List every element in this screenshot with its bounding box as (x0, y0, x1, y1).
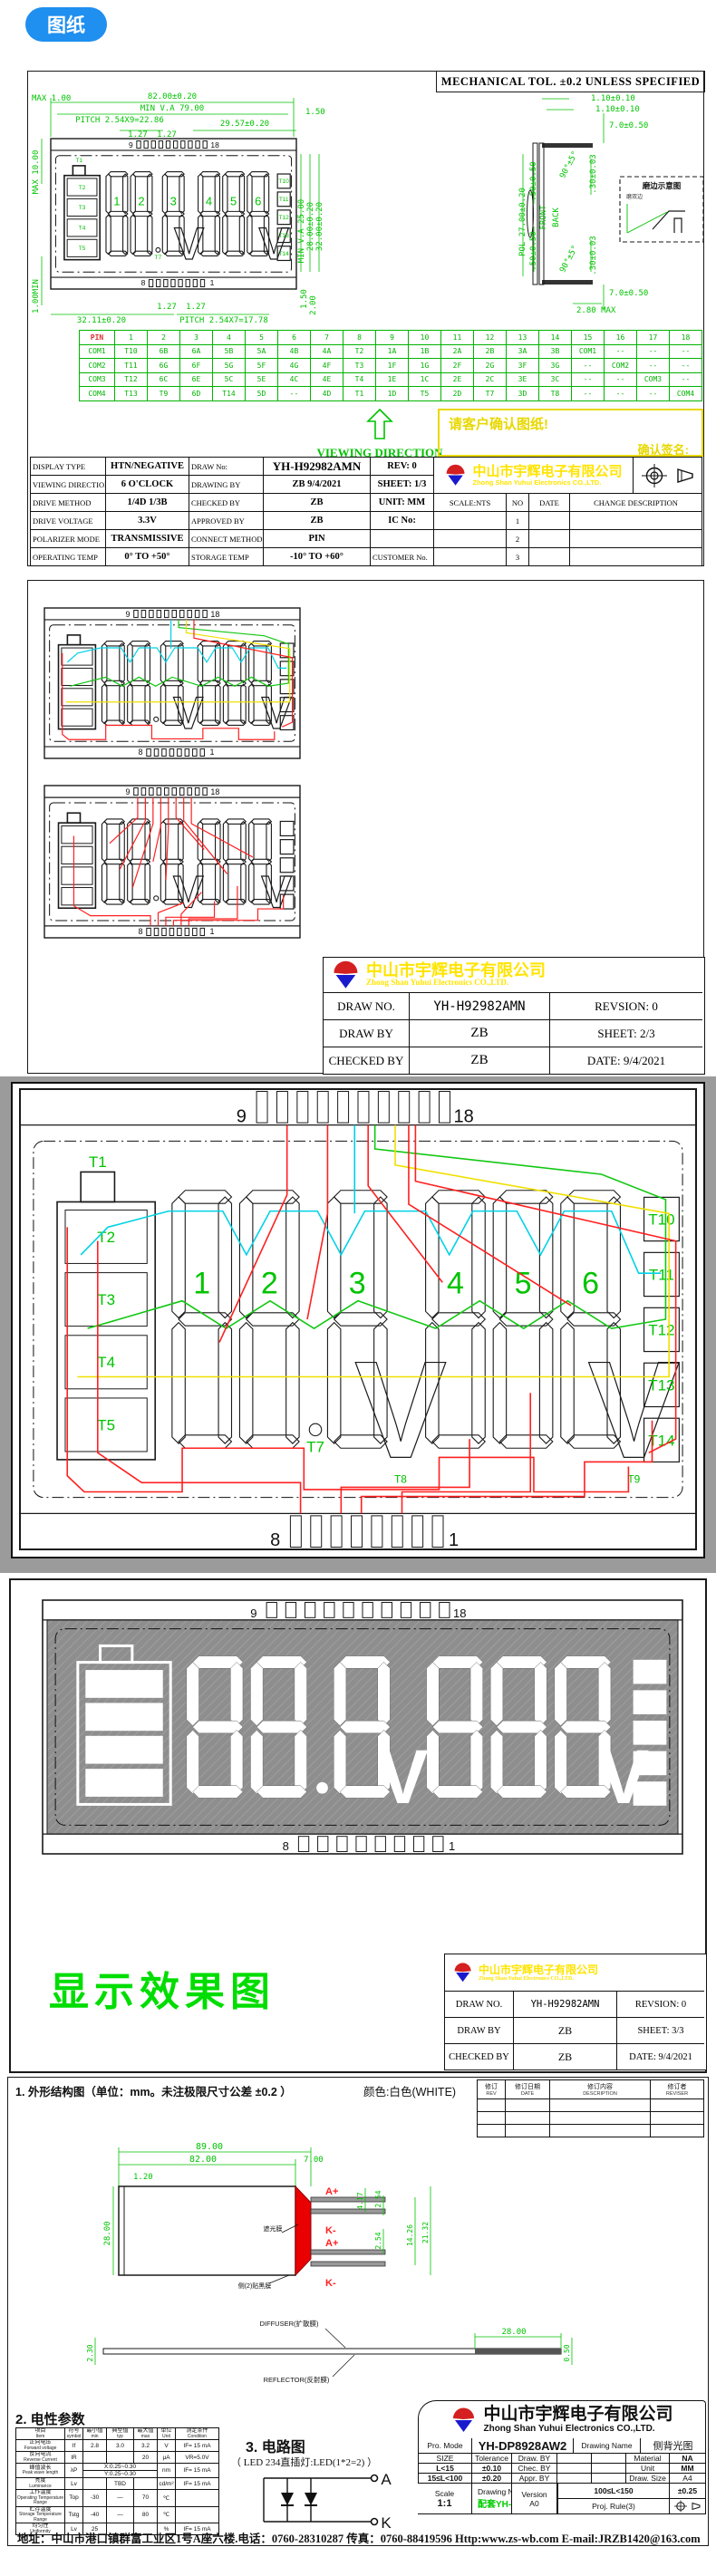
segment (148, 174, 152, 213)
company-name-cn: 中山市宇辉电子有限公司 (483, 2406, 672, 2424)
unit-value: MM (670, 2464, 706, 2474)
segment (470, 1730, 483, 1793)
backlight-page: 1. 外形结构图（单位：mm。未注极限尺寸公差 ±0.2 ） 颜色:白色(WHI… (7, 2077, 709, 2546)
pin (172, 788, 177, 796)
segment (148, 215, 152, 254)
pin-table-cell: T5 (409, 387, 441, 401)
revision-value: REVSION: 0 (550, 992, 702, 1019)
pin-number: 9 (250, 1606, 256, 1620)
pin (338, 1092, 349, 1124)
dim-label: 1.10±0.10 (595, 105, 640, 114)
spec-label: DRAW No: (189, 458, 264, 476)
film-label: 遮光膜 (264, 2224, 283, 2233)
led-pin (311, 2250, 385, 2254)
segment (215, 174, 219, 213)
pin-number: 1 (210, 927, 215, 936)
t-right-label: T11 (279, 197, 289, 203)
pin-number-header: 17 (637, 331, 670, 345)
size-range: 100≤L<150 (557, 2484, 670, 2499)
elec-header: 项目Item (16, 2428, 65, 2440)
company-address: 地址：中山市港口镇群富工业区1号A座六楼.电话：0760-28310287 传真… (17, 2529, 706, 2546)
pin (149, 280, 152, 287)
pin-table-cell: 6C (148, 372, 180, 387)
elec-item: 正向电压Forward voltage (16, 2440, 65, 2452)
segment (374, 1197, 387, 1318)
company-name-en: Zhong Shan Yuhui Electronics CO.,LTD. (483, 2424, 672, 2434)
elec-symbol: λP (65, 2464, 83, 2478)
pin (203, 788, 208, 796)
pin (394, 1837, 404, 1852)
pin (174, 141, 178, 149)
empty-cell (371, 530, 434, 548)
v-symbol: V (173, 688, 203, 738)
revision-header: 修订日期DATE (506, 2080, 550, 2099)
battery-bar (62, 846, 92, 863)
t-right-label: T11 (649, 1266, 674, 1283)
pin-table-cell: -- (637, 387, 670, 401)
segment (179, 174, 184, 213)
elec-header: 符号symbol (65, 2428, 83, 2440)
film-dark-segment (475, 2349, 561, 2354)
segment (128, 863, 132, 902)
confirm-text: 请客户确认图纸! (449, 414, 701, 433)
dim-label: POL 27.00±0.20 (518, 188, 527, 256)
backlight-led-wedge (295, 2186, 311, 2275)
pin (412, 1516, 423, 1548)
pin (144, 141, 148, 149)
pin (324, 1603, 334, 1618)
segment (239, 1323, 252, 1444)
pin-table-cell: 1B (409, 344, 441, 359)
pin (200, 280, 204, 287)
draw-by-value: ZB (514, 2017, 617, 2043)
battery-cap (67, 635, 80, 645)
segment (247, 215, 252, 254)
draw-by-label: Draw. BY (512, 2454, 557, 2464)
spec-value: TRANSMISSIVE (106, 530, 189, 548)
segment (223, 215, 227, 254)
pin (179, 611, 184, 618)
battery-label: T4 (79, 226, 86, 232)
ic-no-label: IC No: (371, 512, 434, 530)
spec-value: ZB 9/4/2021 (264, 476, 371, 494)
pin-table-cell: -- (605, 344, 637, 359)
empty-cell (434, 548, 507, 566)
revision-header: 修订内容DESCRIPTION (550, 2080, 651, 2099)
pin-table-cell: -- (572, 372, 605, 387)
pin (162, 928, 167, 935)
spec-label: POLARIZER MODE (31, 530, 106, 548)
elec-symbol: IR (65, 2452, 83, 2464)
pin-table-cell: 6G (148, 359, 180, 373)
dim-label: 2.54 (374, 2190, 382, 2207)
dim-label: 1.27 (157, 130, 177, 140)
pin-table-cell: 6F (180, 359, 213, 373)
material-value: NA (670, 2454, 706, 2464)
elec-min (83, 2478, 107, 2490)
trace-line (409, 1125, 571, 1306)
elec-condition (176, 2490, 219, 2507)
segment (497, 1786, 547, 1799)
confirm-signature-label: 确认签名: (440, 440, 689, 458)
pin-number-header: 6 (278, 331, 311, 345)
segment (172, 1323, 185, 1444)
battery-bar (62, 668, 92, 685)
company-name-cn: 中山市宇辉电子有限公司 (472, 465, 622, 478)
battery-bar (62, 867, 92, 884)
trace-line (191, 797, 253, 857)
segment (123, 215, 128, 254)
segment (160, 822, 165, 862)
company-banner-cell: 中山市宇辉电子有限公司 Zhong Shan Yuhui Electronics… (434, 458, 634, 494)
trace-line (674, 218, 682, 233)
pin-table-cell: COM3 (80, 372, 115, 387)
dim-line (269, 2275, 289, 2283)
battery-bar (85, 1670, 162, 1698)
signature-cell (557, 2454, 592, 2464)
pin (266, 1603, 276, 1618)
drawing-no-cell: Drawing NO. 配套YH-H92982AMN (472, 2484, 512, 2514)
pin-table-cell: 5A (246, 344, 278, 359)
pin (203, 611, 208, 618)
pin-assignment-table: PIN123456789101112131415161718COM1T106B6… (79, 330, 702, 401)
sheet-value: SHEET: 3/3 (617, 2017, 704, 2043)
pin (317, 1092, 328, 1124)
digit-label: 6 (582, 1267, 599, 1301)
pin-table-cell: 1A (376, 344, 409, 359)
elec-item: 工作温度Operating Temperature Range (16, 2490, 65, 2507)
pin-number: 8 (141, 278, 146, 287)
empty-cell (570, 512, 702, 530)
empty-cell (434, 530, 507, 548)
pin-table-cell: 2A (441, 344, 474, 359)
company-banner: 中山市宇辉电子有限公司 Zhong Shan Yuhui Electronics… (444, 464, 622, 487)
pin (141, 611, 146, 618)
pin (432, 1516, 443, 1548)
revision-empty-cell (651, 2099, 704, 2112)
pin-table-cell: T4 (343, 372, 376, 387)
digit-label: 4 (206, 195, 212, 208)
segment (264, 174, 268, 213)
pin (399, 1092, 410, 1124)
change-description-label: CHANGE DESCRIPTION (570, 494, 702, 512)
v-symbol: V (261, 865, 292, 917)
pin-number-header: 12 (474, 331, 507, 345)
decimal-point (154, 896, 159, 901)
segment (241, 684, 246, 723)
pin (147, 928, 151, 935)
size-range: 15≤L<100 (418, 2474, 472, 2484)
pin-table-cell: -- (278, 387, 311, 401)
battery-bar (62, 888, 92, 905)
pin (162, 749, 167, 757)
magnified-wiring-canvas: 91881T2T3T4T5T1123456T7VT8VT9T10T11T12T1… (13, 1084, 703, 1557)
drawing-tab-chip[interactable]: 图纸 (25, 7, 107, 42)
elec-header: 测定条件Condition (176, 2428, 219, 2440)
trace-line (73, 835, 150, 925)
segment (555, 1730, 567, 1793)
sheet-value: SHEET: 2/3 (550, 1019, 702, 1047)
dim-label: 14.26 (406, 2224, 414, 2246)
pin-table-cell: 5C (213, 372, 246, 387)
spec-label: CONNECT METHOD (189, 530, 264, 548)
rev-row-number: 2 (507, 530, 529, 548)
pin (141, 788, 146, 796)
elec-typ: — (107, 2490, 134, 2507)
drawing-no-label: Drawing NO. (478, 2487, 512, 2496)
dim-label: PITCH 2.54X7=17.78 (179, 316, 268, 325)
pin-number-header: 8 (343, 331, 376, 345)
pin-table-cell: 4C (278, 372, 311, 387)
signature-cell (557, 2474, 592, 2484)
v-symbol: V (258, 218, 288, 269)
dim-label: 1.00MIN (32, 279, 41, 314)
decimal-point (316, 1782, 328, 1794)
segment (179, 1191, 231, 1203)
pin-table-cell: 1G (409, 359, 441, 373)
segment (223, 684, 227, 723)
pin-number-header: 15 (572, 331, 605, 345)
company-banner: 中山市宇辉电子有限公司 Zhong Shan Yuhui Electronics… (418, 2400, 706, 2438)
pin (285, 1603, 295, 1618)
v-symbol: V (377, 1734, 428, 1819)
dim-label: 1.27 (128, 130, 148, 140)
trace-line (88, 1125, 666, 1329)
pin (331, 1516, 342, 1548)
dim-label: 28.00±0.20 (306, 202, 315, 251)
trace-line (176, 797, 204, 849)
pin (137, 141, 140, 149)
pin (188, 788, 192, 796)
pin-table-cell: 3F (507, 359, 539, 373)
draw-no-value: YH-H92982AMN (514, 1991, 617, 2017)
segment (223, 863, 227, 902)
pin (358, 1092, 369, 1124)
pin (337, 1837, 347, 1852)
elec-header: 典型值typ (107, 2428, 134, 2440)
terminal-k (372, 2519, 378, 2525)
segment (160, 684, 165, 723)
elec-min: -30 (83, 2490, 107, 2507)
right-bar (634, 1721, 667, 1745)
dim-label: 1.20 (133, 2173, 153, 2182)
dim-label: .30±0.03 (589, 236, 598, 275)
segment (241, 863, 246, 902)
pin (375, 1837, 385, 1852)
pin (186, 280, 189, 287)
trace-line (70, 620, 288, 686)
sheet2-title-block: 中山市宇辉电子有限公司 Zhong Shan Yuhui Electronics… (323, 957, 705, 1075)
pin-table-cell: 6B (148, 344, 180, 359)
revision-table: 修订REV修订日期DATE修订内容DESCRIPTION修订者REVISER (477, 2079, 704, 2137)
pin (421, 1603, 431, 1618)
pin-table-cell: 3C (539, 372, 572, 387)
pin (196, 141, 199, 149)
segment (295, 1662, 307, 1725)
battery-label: T4 (97, 1354, 115, 1371)
pin (298, 1837, 308, 1852)
elec-unit: μA (158, 2452, 176, 2464)
pin (193, 280, 197, 287)
segment (187, 1730, 199, 1793)
segment (162, 174, 167, 213)
spec-label: VIEWING DIRECTION (31, 476, 106, 494)
t7-label: T7 (155, 255, 162, 261)
elec-typ (107, 2452, 134, 2464)
segment (334, 1730, 346, 1793)
pin (419, 1092, 430, 1124)
checked-by-value: ZB (410, 1047, 550, 1074)
pin-number: 18 (210, 610, 219, 619)
dim-label: 7.0±0.50 (609, 121, 648, 130)
pin-table-cell: -- (637, 359, 670, 373)
dim-label: 1.50 (305, 108, 325, 117)
pin-number-header: 14 (539, 331, 572, 345)
drawing-document: 图纸 MECHANICAL TOL. ±0.2 UNLESS SPECIFIED… (0, 0, 716, 2576)
segment (250, 1730, 263, 1793)
viewing-direction-arrow-icon (366, 409, 393, 439)
elec-typ: 3.0 (107, 2440, 134, 2452)
elec-unit: cd/m² (158, 2478, 176, 2490)
battery-bar (62, 709, 92, 726)
trace-line (653, 211, 685, 229)
scale-label: Scale (435, 2489, 454, 2498)
segment (432, 1191, 485, 1203)
pin-number: 9 (125, 610, 130, 619)
spec-value: ZB (264, 512, 371, 530)
pin (147, 749, 151, 757)
pin-number: 18 (453, 1107, 473, 1127)
company-banner: 中山市宇辉电子有限公司 Zhong Shan Yuhui Electronics… (324, 958, 702, 992)
led-pin (311, 2209, 385, 2214)
diode-icon (281, 2493, 294, 2505)
pin-number-header: 11 (441, 331, 474, 345)
pin-table-cell: -- (670, 359, 702, 373)
checked-by-label: CHECKED BY (445, 2043, 514, 2069)
segment (230, 1662, 243, 1725)
segment (241, 643, 246, 682)
battery-bar (62, 689, 92, 706)
t-right-label: T13 (279, 233, 290, 239)
segment (378, 1662, 391, 1725)
pin-number: 18 (210, 787, 219, 796)
dim-label: 4.17 (356, 2192, 364, 2209)
v-label: T8 (394, 1472, 407, 1485)
pin (172, 611, 177, 618)
pin-table-cell: 6E (180, 372, 213, 387)
pin (188, 611, 192, 618)
pin-number: 1 (449, 1839, 455, 1853)
elec-unit: ℃ (158, 2490, 176, 2507)
segment (327, 1323, 340, 1444)
drawing-name-value: 侧背光图 (641, 2438, 706, 2454)
revision-empty-cell (506, 2112, 550, 2125)
segment (145, 863, 150, 902)
anode-label: A+ (325, 2238, 338, 2249)
pin-table-cell: -- (670, 372, 702, 387)
pin-table-cell: -- (637, 344, 670, 359)
spec-label: APPROVED BY (189, 512, 264, 530)
pin (166, 141, 169, 149)
t-right-label: T12 (648, 1321, 674, 1338)
magnified-diagram-band: 91881T2T3T4T5T1123456T7VT8VT9T10T11T12T1… (0, 1076, 716, 1573)
dim-label: 82.00±0.20 (148, 92, 197, 101)
spec-value: HTN/NEGATIVE (106, 458, 189, 476)
unit-value: UNIT: MM (371, 494, 434, 512)
draw-no-value: YH-H92982AMN (410, 992, 550, 1019)
digit-label: 4 (447, 1267, 464, 1301)
pin (311, 1516, 322, 1548)
segment (239, 1197, 252, 1318)
pin (200, 928, 205, 935)
segment (216, 863, 220, 902)
diode-icon (305, 2493, 317, 2505)
pro-mode-label: Pro. Mode (418, 2438, 472, 2454)
dim-label: 2.30 (86, 2344, 94, 2361)
right-bar (634, 1690, 667, 1714)
draw-by-value: ZB (410, 1019, 550, 1047)
elec-condition: IF= 15 mA (176, 2440, 219, 2452)
pin-number: 8 (270, 1530, 280, 1550)
pin-number: 18 (210, 140, 219, 150)
segment (128, 684, 132, 723)
elec-item: 贮存温度Storage Temperature Range (16, 2507, 65, 2524)
dim-label: 28.00 (103, 2221, 112, 2245)
projection-symbol-cell (634, 458, 702, 494)
battery-label: T3 (79, 205, 86, 211)
segment (490, 1730, 503, 1793)
pin-table-cell: 5D (246, 387, 278, 401)
sheet2-page: 91881VV91881VV 中山市宇辉电子有限公司 Zhong Shan Yu… (27, 580, 704, 1074)
scale-cell: Scale 1:1 (418, 2484, 472, 2514)
segment (179, 822, 183, 862)
right-bar (634, 1781, 667, 1806)
pin-table-cell: 2F (441, 359, 474, 373)
elec-unit: nm (158, 2464, 176, 2478)
pin-table-cell: 2C (474, 372, 507, 387)
customer-confirm-note: 请客户确认图纸! 确认签名: (438, 409, 703, 457)
dim-label: 1.10±0.10 (591, 94, 635, 103)
pin-number-header: 1 (115, 331, 148, 345)
revision-value: REVSION: 0 (617, 1991, 704, 2017)
date-value: DATE: 9/4/2021 (617, 2043, 704, 2069)
elec-max: 80 (134, 2507, 158, 2524)
pin (181, 141, 185, 149)
pin-table-cell: -- (572, 359, 605, 373)
dim-label: 2.80 MAX (576, 306, 616, 315)
pin (164, 280, 168, 287)
pin (356, 1837, 366, 1852)
sheet3-title-block: 中山市宇辉电子有限公司 Zhong Shan Yuhui Electronics… (444, 1954, 707, 2070)
pin-table-cell: 2B (474, 344, 507, 359)
spec-value: PIN (264, 530, 371, 548)
segment (179, 643, 183, 682)
pin-table-cell: 4E (311, 372, 343, 387)
pin-table-cell: 3G (539, 359, 572, 373)
pin-table-cell: 2G (474, 359, 507, 373)
rev-value: REV: 0 (371, 458, 434, 476)
pin-number-header: 5 (246, 331, 278, 345)
company-logo-icon (444, 464, 468, 487)
electrical-parameters-table: 项目Item符号symbol最小值min典型值typ最大值max单位Unit测定… (15, 2427, 219, 2535)
revision-empty-cell (506, 2125, 550, 2137)
pin-table-cell: 3D (507, 387, 539, 401)
pin-table-cell: COM4 (80, 387, 115, 401)
segment (432, 1786, 482, 1799)
pin (195, 611, 199, 618)
film-label: REFLECTOR(反射膜) (264, 2375, 330, 2384)
pin-table-cell: -- (572, 387, 605, 401)
